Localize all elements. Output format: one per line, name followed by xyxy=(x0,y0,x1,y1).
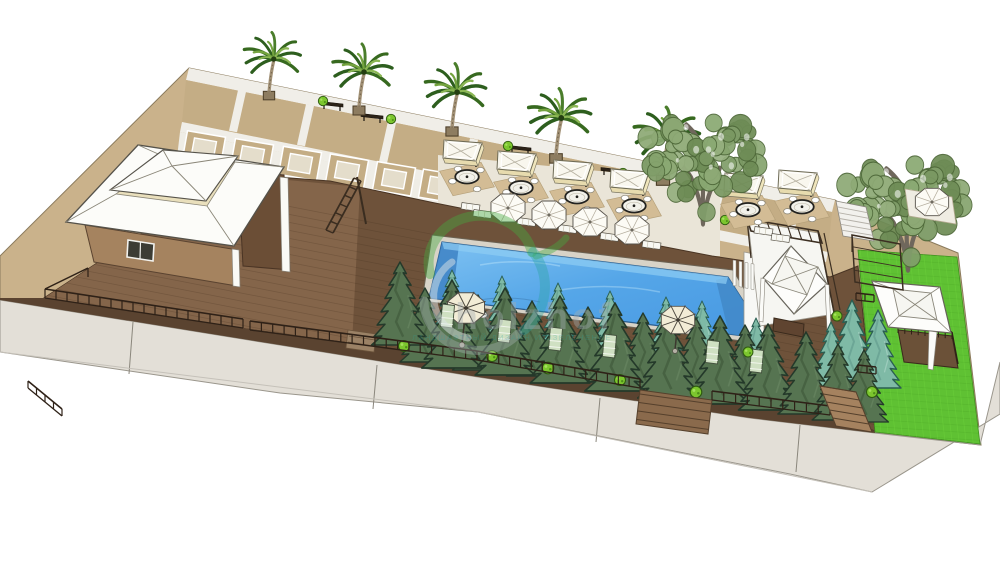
svg-text:holzhof: holzhof xyxy=(455,296,615,337)
svg-text:ЛАНДШАФТНЫЙ ДИЗАЙН И ОЗЕЛЕНЕНИ: ЛАНДШАФТНЫЙ ДИЗАЙН И ОЗЕЛЕНЕНИЕ xyxy=(412,333,612,342)
